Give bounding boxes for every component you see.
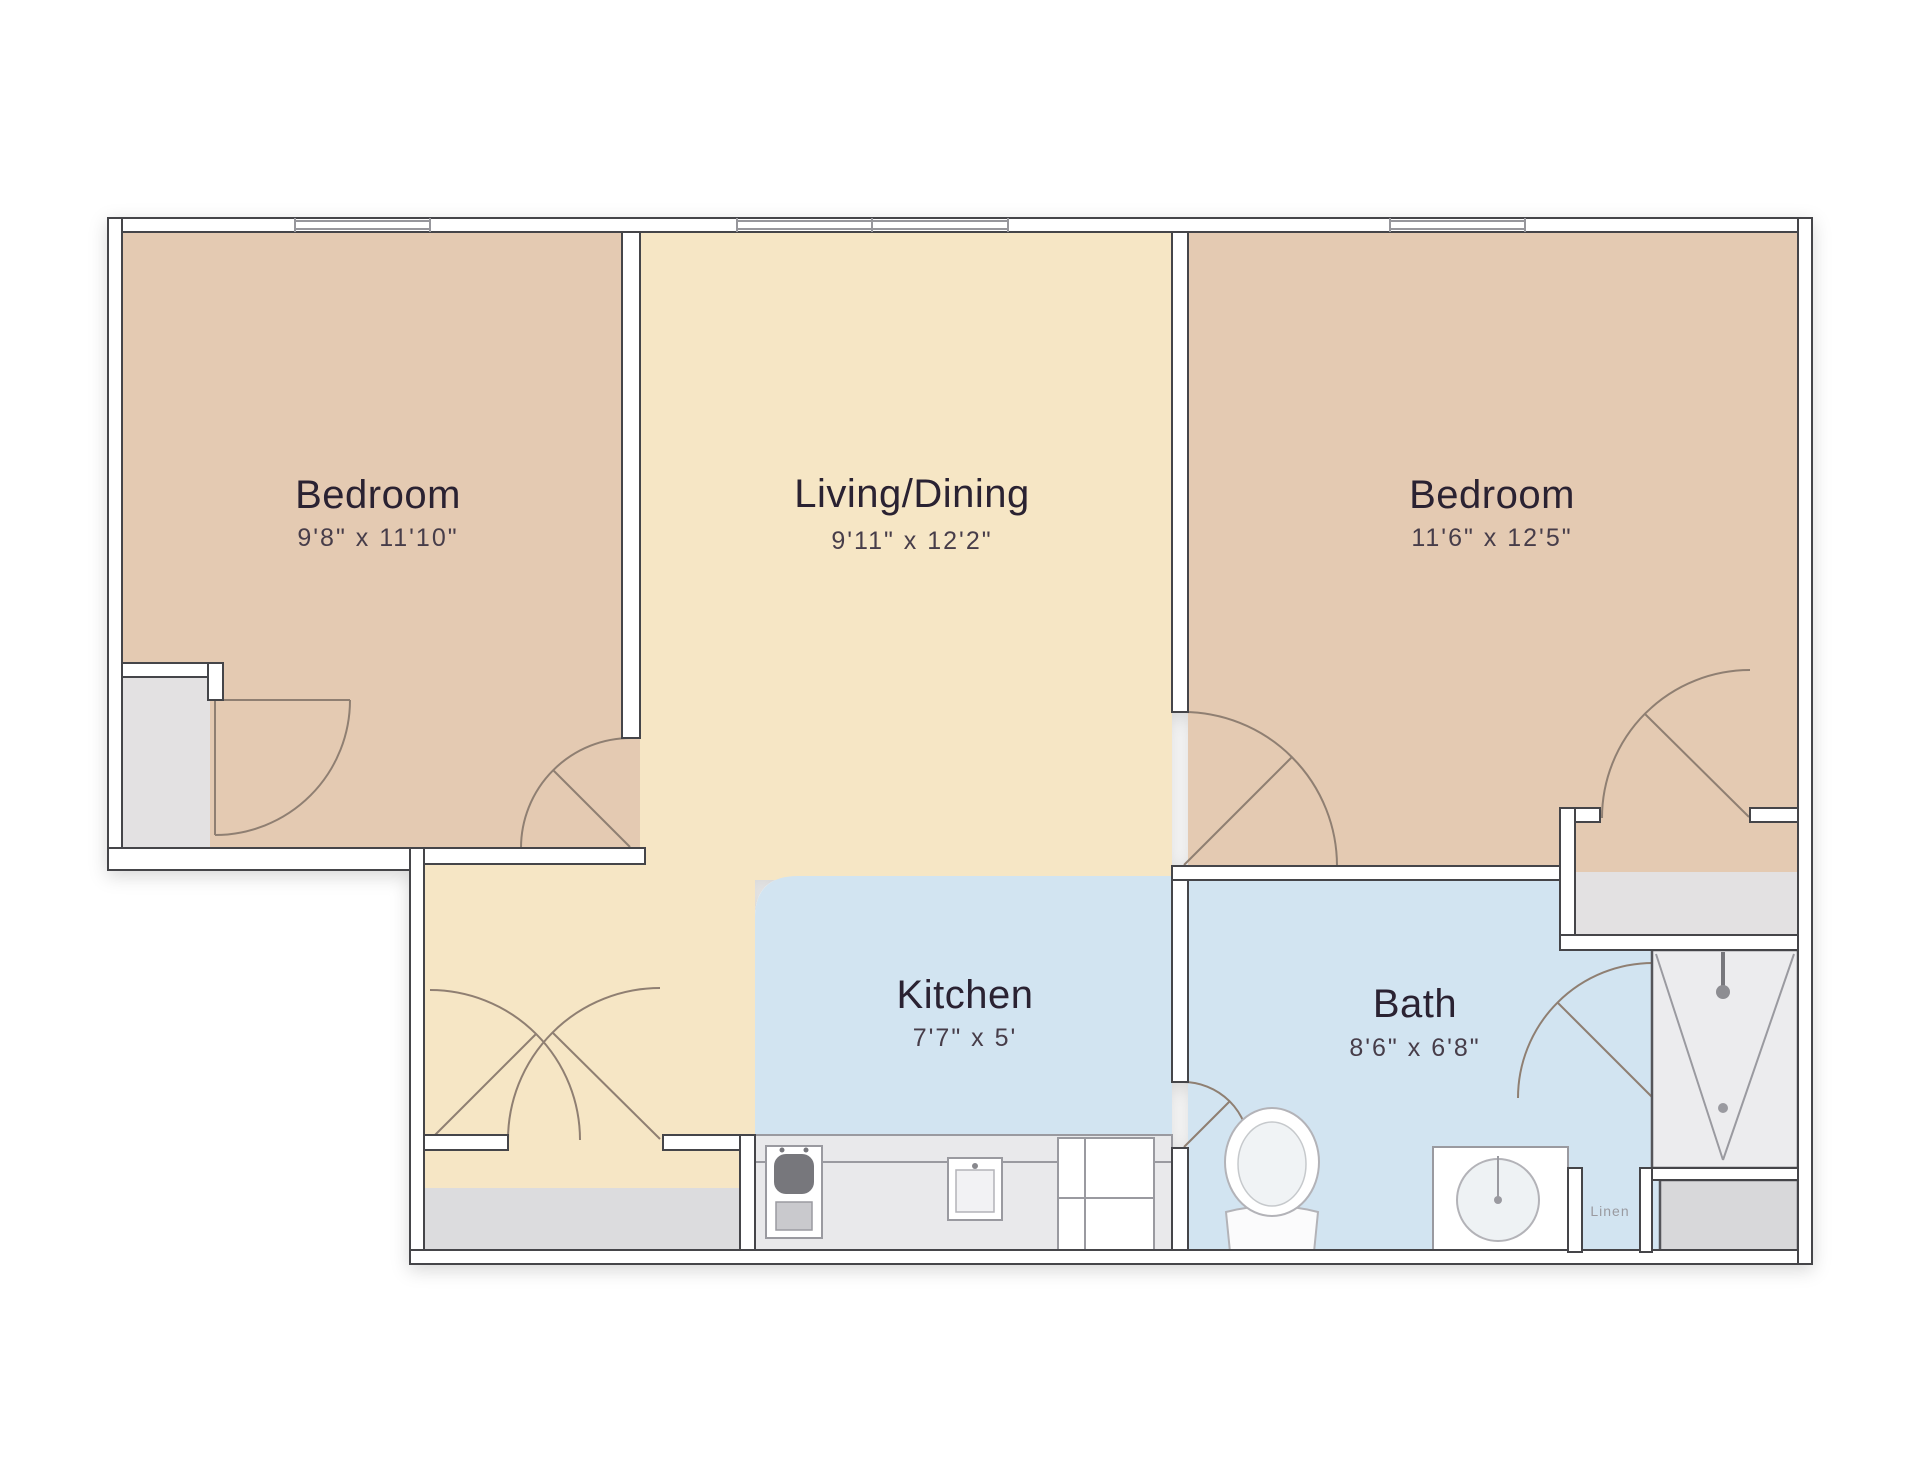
bedroom-right-dims: 11'6" x 12'5"	[1411, 524, 1572, 552]
room-fills	[122, 232, 1798, 1250]
closet-left-floor	[122, 677, 210, 848]
kitchen-dims: 7'7" x 5'	[913, 1024, 1018, 1052]
living-dining-floor	[640, 232, 1172, 880]
wall-entry-a	[424, 1135, 508, 1150]
bedroom-right-title: Bedroom	[1409, 473, 1575, 517]
stove-icon	[766, 1146, 822, 1238]
wall-exterior-bedleft-bottom	[108, 848, 424, 870]
floorplan-canvas: Bedroom 9'8" x 11'10" Living/Dining 9'11…	[0, 0, 1920, 1484]
wall-linen-left	[1568, 1168, 1582, 1252]
linen-closet-label: Linen	[1590, 1203, 1629, 1219]
shower-icon	[1652, 950, 1798, 1168]
living-dining-dims: 9'11" x 12'2"	[831, 527, 992, 555]
wall-exterior-left	[108, 218, 122, 870]
wall-exterior-right	[1798, 218, 1812, 1264]
wall-exterior-bottom	[410, 1250, 1812, 1264]
toilet-icon	[1225, 1108, 1319, 1252]
wall-kitchen-bath-upper	[1172, 866, 1188, 1082]
bedroom-left-dims: 9'8" x 11'10"	[297, 524, 458, 552]
closet-right-floor-top	[1575, 822, 1798, 872]
wall-kitchen-bath-lower	[1172, 1148, 1188, 1250]
wall-closet-right-bottom	[1560, 935, 1798, 950]
wall-closet-left-stub	[208, 663, 223, 700]
closet-right-floor	[1575, 872, 1798, 935]
bath-dims: 8'6" x 6'8"	[1349, 1034, 1480, 1062]
wall-closet-right-top-a	[1575, 808, 1600, 822]
floorplan: Bedroom 9'8" x 11'10" Living/Dining 9'11…	[108, 218, 1812, 1264]
kitchen-title: Kitchen	[897, 973, 1034, 1017]
wall-linen-right	[1640, 1168, 1652, 1252]
vanity-sink-icon	[1433, 1147, 1568, 1252]
entry-mat	[424, 1188, 740, 1250]
bedroom-left-title: Bedroom	[295, 473, 461, 517]
bath-title: Bath	[1373, 982, 1457, 1026]
wall-living-bedright	[1172, 232, 1188, 712]
wall-vestibule-kitchen	[740, 1135, 755, 1250]
wall-bedright-bath	[1172, 866, 1575, 880]
refrigerator-icon	[1058, 1138, 1154, 1250]
wall-shower-bottom	[1652, 1168, 1798, 1180]
wall-bedleft-living	[622, 232, 640, 738]
wall-closet-right-top-b	[1750, 808, 1798, 822]
wall-closet-right-left	[1560, 808, 1575, 950]
wall-bedleft-hall	[424, 848, 645, 864]
living-dining-title: Living/Dining	[794, 472, 1030, 516]
wall-exterior-hall-left	[410, 848, 424, 1264]
kitchen-sink-icon	[948, 1158, 1002, 1220]
bath-cabinet	[1660, 1180, 1798, 1252]
